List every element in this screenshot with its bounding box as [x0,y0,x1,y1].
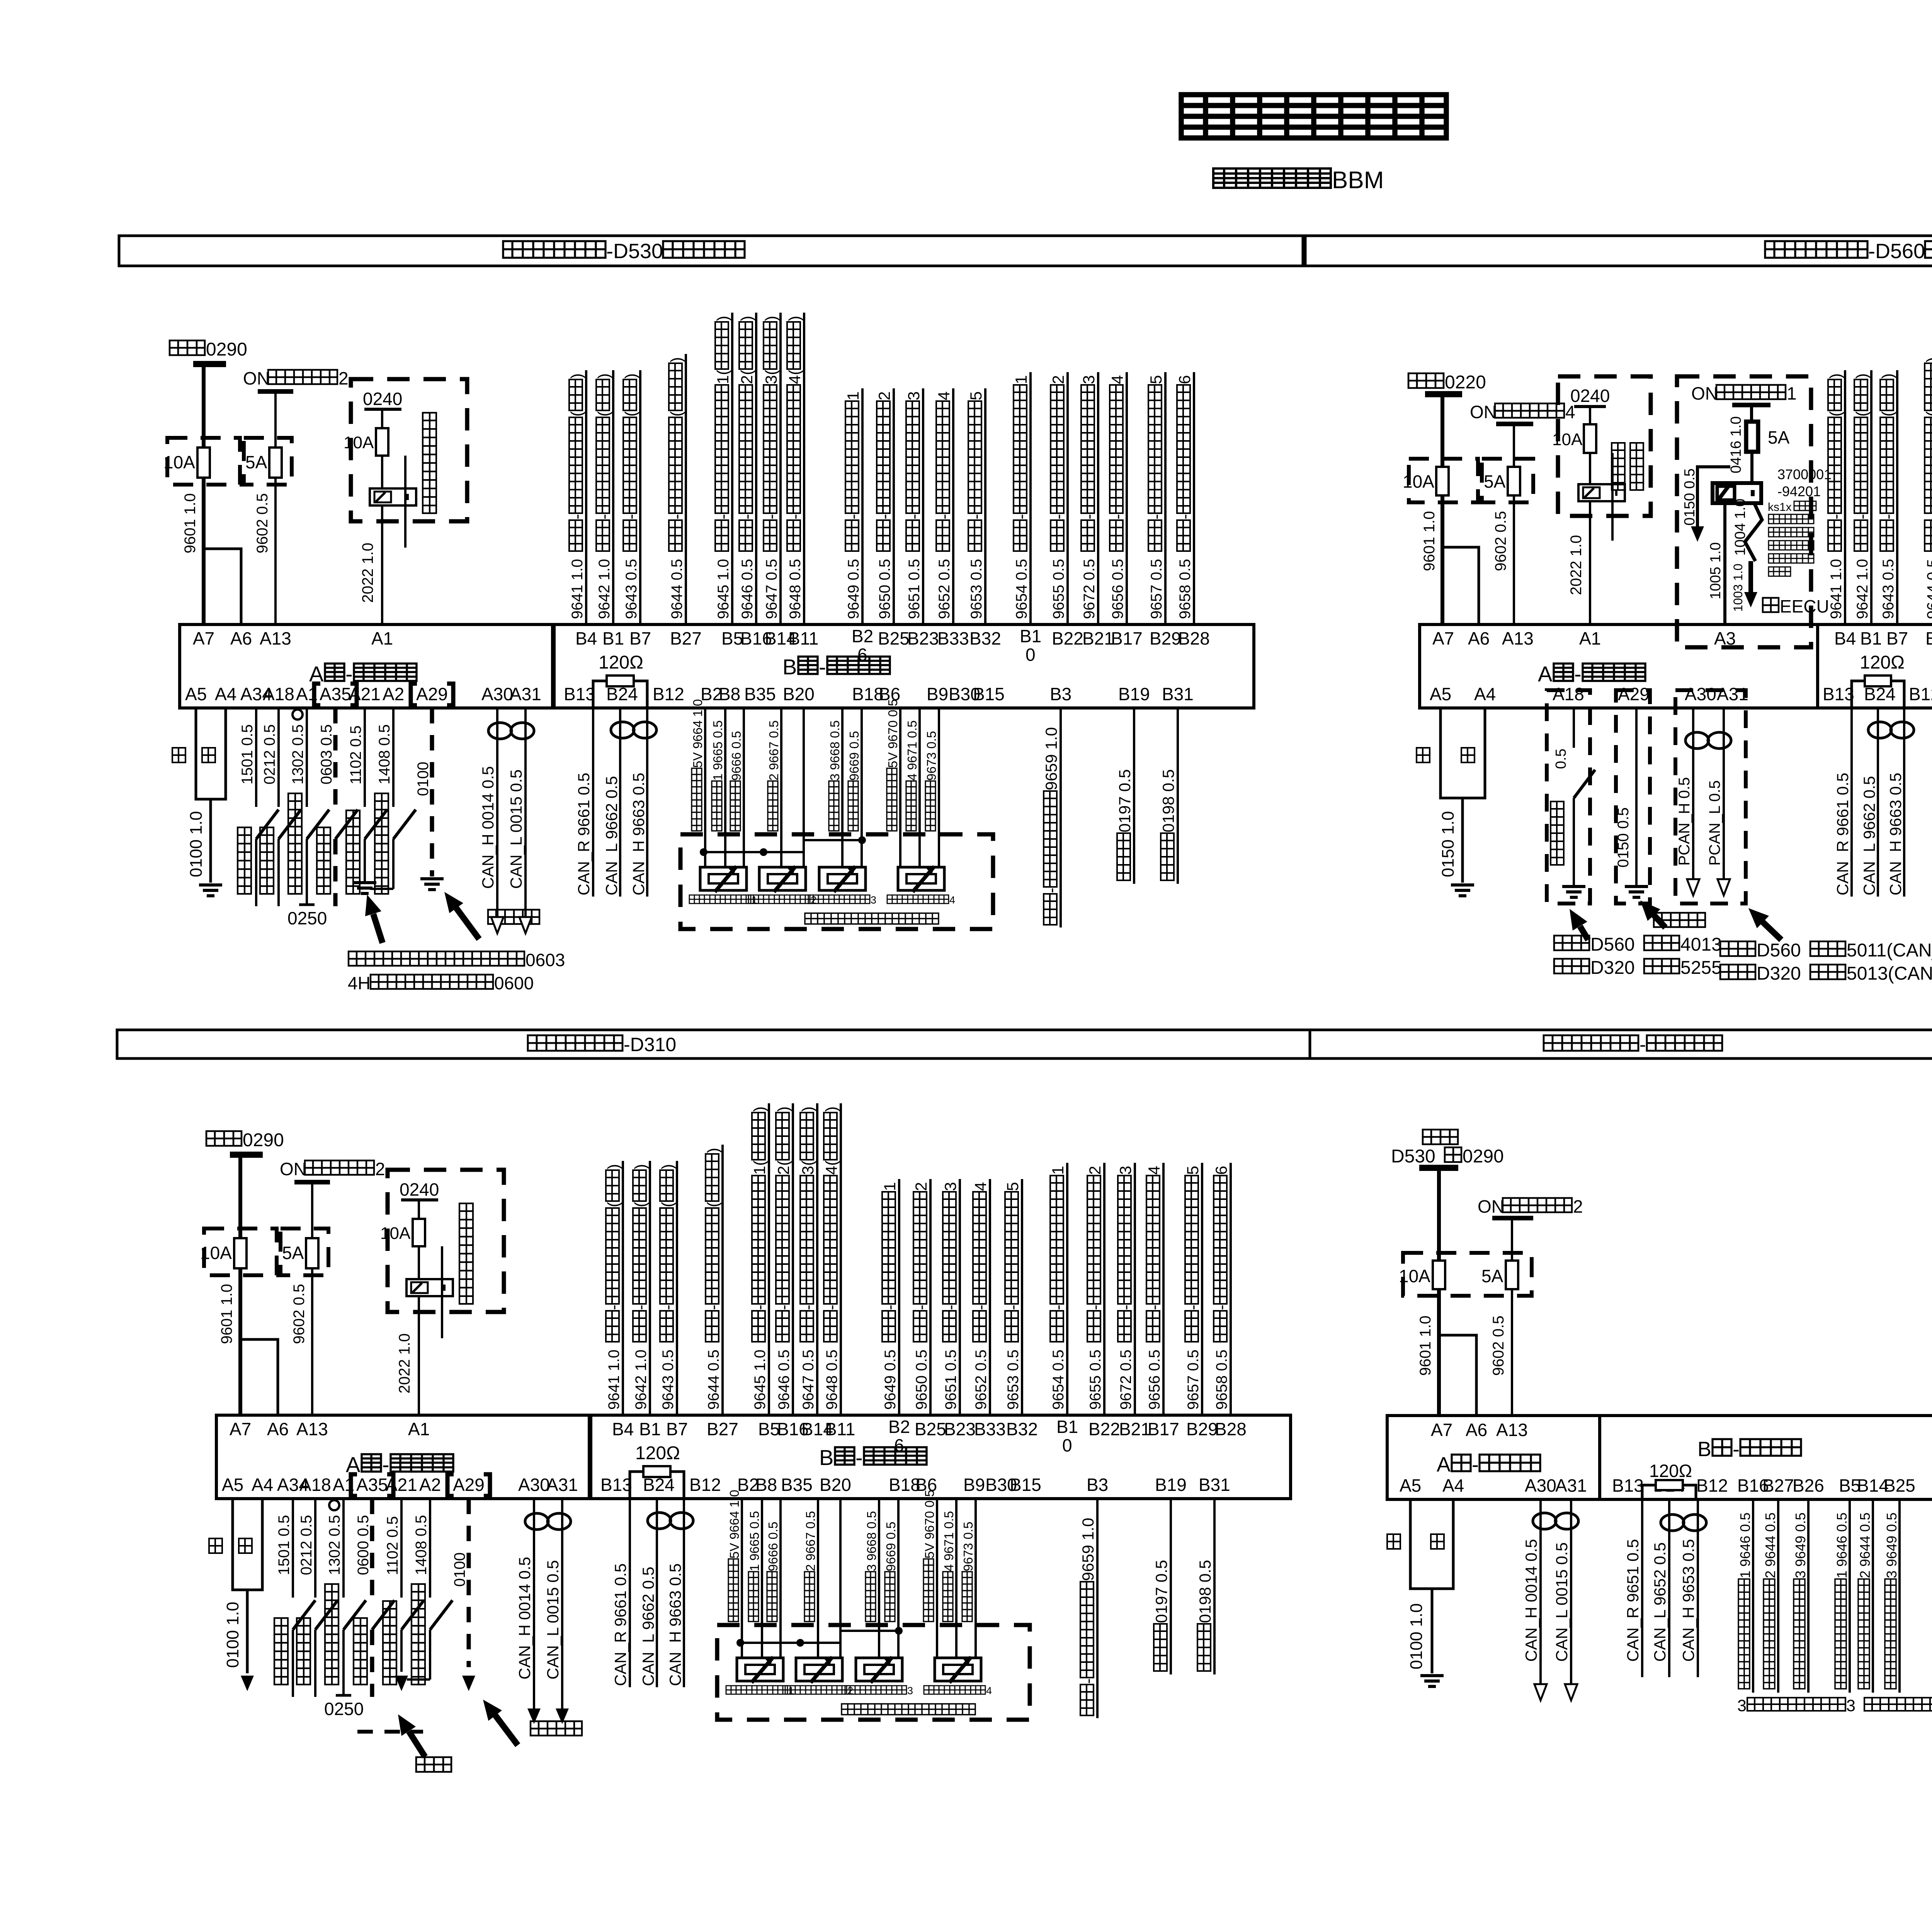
svg-text:CAN_L 0015 0.5: CAN_L 0015 0.5 [507,769,525,889]
svg-text:-: - [905,514,923,519]
svg-text:1 9665 0.5: 1 9665 0.5 [711,720,725,781]
svg-text:ON: ON [1478,1196,1504,1217]
svg-text:A31: A31 [510,684,541,704]
svg-text:9653 0.5: 9653 0.5 [1005,1349,1022,1410]
svg-text:2 9667 0.5: 2 9667 0.5 [803,1511,818,1571]
svg-text:A1: A1 [408,1419,430,1439]
svg-text:): ) [714,316,732,321]
svg-text:120Ω: 120Ω [1649,1461,1692,1481]
svg-text:9656 0.5: 9656 0.5 [1109,559,1126,619]
svg-text:9641 1.0: 9641 1.0 [569,559,586,619]
svg-text:B13: B13 [1823,684,1854,704]
svg-text:B1: B1 [1056,1417,1078,1437]
svg-text:9654 0.5: 9654 0.5 [1050,1349,1067,1410]
svg-text:): ) [622,373,640,379]
svg-text:B1: B1 [1860,628,1882,648]
svg-text:2(: 2( [774,1160,793,1175]
svg-text:-: - [875,514,893,519]
svg-text:120Ω: 120Ω [599,652,643,673]
svg-text:5V 9670 0.5: 5V 9670 0.5 [886,699,900,768]
svg-text:B: B [819,1445,833,1470]
svg-text:3: 3 [907,1685,913,1696]
svg-text:B26: B26 [1793,1475,1824,1496]
svg-text:(: ( [604,1202,622,1207]
svg-text:B20: B20 [783,684,815,704]
svg-text:A4: A4 [252,1475,273,1495]
svg-text:5: 5 [1003,1182,1022,1191]
svg-text:0240: 0240 [363,389,402,409]
svg-text:1 9646 0.5: 1 9646 0.5 [1737,1513,1753,1578]
svg-text:A29: A29 [416,684,448,704]
svg-text:9642 1.0: 9642 1.0 [633,1349,650,1410]
svg-text:-: - [881,1305,899,1310]
svg-text:B9: B9 [927,684,948,704]
svg-text:2: 2 [1049,375,1067,384]
svg-text:A5: A5 [222,1475,243,1495]
svg-text:): ) [738,316,756,321]
svg-text:B31: B31 [1162,684,1194,704]
svg-text:1302 0.5: 1302 0.5 [326,1515,343,1575]
svg-text:(: ( [658,1202,677,1207]
svg-text:-: - [967,514,985,519]
svg-text:A31: A31 [1717,684,1748,704]
svg-text:): ) [704,1148,722,1153]
svg-text:-: - [1472,1453,1479,1476]
svg-text:B35: B35 [744,684,776,704]
svg-text:CAN_L 9662 0.5: CAN_L 9662 0.5 [639,1567,657,1686]
svg-text:9657 0.5: 9657 0.5 [1148,559,1165,619]
svg-text:A6: A6 [1466,1420,1487,1440]
svg-text:B32: B32 [969,628,1001,648]
svg-text:9655 0.5: 9655 0.5 [1050,559,1067,619]
svg-text:B1: B1 [602,628,624,648]
svg-text:2 9644 0.5: 2 9644 0.5 [1857,1513,1873,1578]
svg-text:B12: B12 [1696,1475,1728,1496]
svg-text:-: - [1086,1305,1104,1310]
svg-text:-: - [658,1305,677,1310]
svg-text:1: 1 [844,391,862,400]
svg-text:A2: A2 [419,1475,441,1495]
svg-text:0600 0.5: 0600 0.5 [355,1515,372,1575]
svg-text:A5: A5 [185,684,207,704]
svg-text:-D530: -D530 [606,240,663,263]
svg-text:ON: ON [280,1159,306,1179]
svg-text:0198 0.5: 0198 0.5 [1196,1560,1214,1623]
svg-text:0250: 0250 [287,908,327,928]
svg-text:-D560: -D560 [1868,240,1925,263]
svg-text:A30: A30 [1525,1475,1556,1496]
svg-text:9666 0.5: 9666 0.5 [766,1522,780,1571]
svg-text:B15: B15 [1010,1475,1041,1495]
svg-text:B2: B2 [888,1417,910,1437]
svg-text:): ) [1827,373,1845,379]
svg-text:-: - [1080,514,1098,519]
svg-text:9650 0.5: 9650 0.5 [913,1349,930,1410]
svg-text:9651 0.5: 9651 0.5 [942,1349,959,1410]
svg-text:9646 0.5: 9646 0.5 [776,1349,793,1410]
svg-text:9602 0.5: 9602 0.5 [291,1284,308,1344]
svg-text:A: A [1538,662,1553,686]
svg-text:A29: A29 [453,1475,485,1495]
svg-text:1003 1.0: 1003 1.0 [1731,563,1745,612]
svg-text:-: - [1049,514,1067,519]
svg-text:4H: 4H [348,973,371,993]
svg-text:3: 3 [1080,375,1098,384]
svg-text:B32: B32 [1006,1419,1038,1439]
svg-text:4: 4 [949,894,955,906]
svg-text:CAN_L 9662 0.5: CAN_L 9662 0.5 [602,776,621,895]
svg-text:B7: B7 [629,628,651,648]
svg-text:B23: B23 [944,1419,976,1439]
svg-text:0250: 0250 [324,1699,364,1719]
svg-text:0198 0.5: 0198 0.5 [1159,769,1177,833]
svg-text:-: - [941,1305,959,1310]
svg-text:2: 2 [1086,1166,1104,1175]
svg-text:B33: B33 [974,1419,1006,1439]
svg-text:0603: 0603 [526,950,565,970]
svg-text:-: - [799,1305,817,1310]
svg-text:-: - [1079,1678,1097,1684]
svg-text:-: - [1003,1305,1022,1310]
svg-text:D560: D560 [1590,934,1635,955]
svg-text:A6: A6 [1468,628,1490,648]
svg-text:B11: B11 [825,1419,855,1439]
svg-text:B15: B15 [973,684,1005,704]
svg-text:0240: 0240 [1570,386,1610,406]
svg-text:): ) [667,357,685,362]
svg-text:CAN_R 9661 0.5: CAN_R 9661 0.5 [611,1563,629,1686]
svg-text:0150 1.0: 0150 1.0 [1439,811,1458,877]
svg-text:B25: B25 [878,628,910,648]
svg-text:9642 1.0: 9642 1.0 [1854,559,1871,619]
svg-text:4013: 4013 [1680,934,1722,955]
svg-text:B13: B13 [600,1475,632,1495]
svg-text:D320: D320 [1590,958,1635,978]
svg-text:2: 2 [1573,1196,1583,1217]
svg-text:A5: A5 [1400,1475,1421,1496]
svg-text:9643 0.5: 9643 0.5 [660,1349,677,1410]
svg-text:0290: 0290 [206,339,247,360]
svg-text:-: - [1212,1305,1230,1310]
svg-text:2: 2 [375,1159,385,1179]
svg-text:-: - [622,514,640,519]
svg-text:5: 5 [1147,375,1165,384]
svg-text:(: ( [568,411,586,417]
svg-text:B17: B17 [1148,1419,1179,1439]
svg-text:CAN_R 9661 0.5: CAN_R 9661 0.5 [575,773,593,895]
svg-text:9602 0.5: 9602 0.5 [254,493,271,553]
svg-text:CAN_H 0014 0.5: CAN_H 0014 0.5 [515,1557,534,1679]
svg-text:0150 0.5: 0150 0.5 [1682,468,1698,526]
svg-text:3 9668 0.5: 3 9668 0.5 [864,1511,879,1571]
svg-text:ON: ON [243,368,270,388]
svg-text:A29: A29 [1618,684,1650,704]
svg-text:1: 1 [881,1182,899,1191]
svg-text:): ) [750,1106,769,1112]
svg-text:B21: B21 [1119,1419,1151,1439]
svg-text:-: - [1879,514,1897,519]
svg-text:): ) [658,1164,677,1169]
svg-text:A4: A4 [1442,1475,1464,1496]
svg-text:4: 4 [935,391,953,400]
svg-text:-: - [1184,1305,1202,1310]
svg-text:3700001: 3700001 [1777,466,1832,482]
svg-text:0220: 0220 [1445,372,1486,393]
svg-text:A4: A4 [215,684,236,704]
svg-text:-: - [1574,662,1582,686]
svg-text:5V 9664 1.0: 5V 9664 1.0 [690,699,705,768]
svg-text:-: - [1639,1034,1646,1055]
svg-text:-: - [819,655,826,679]
svg-text:9601 1.0: 9601 1.0 [218,1284,235,1344]
svg-text:0197 0.5: 0197 0.5 [1152,1560,1170,1623]
svg-text:CAN_H 9653 0.5: CAN_H 9653 0.5 [1679,1539,1697,1662]
svg-text:CAN_L 0015 0.5: CAN_L 0015 0.5 [1553,1542,1571,1662]
svg-text:1501 0.5: 1501 0.5 [276,1515,293,1575]
svg-text:CAN_L 0015 0.5: CAN_L 0015 0.5 [544,1560,562,1679]
svg-text:6: 6 [1175,375,1194,384]
svg-text:10A: 10A [344,433,374,452]
svg-text:9647 0.5: 9647 0.5 [800,1349,817,1410]
svg-text:9658 0.5: 9658 0.5 [1177,559,1194,619]
svg-text:B17: B17 [1111,628,1143,648]
svg-text:-: - [1853,514,1871,519]
svg-text:A18: A18 [299,1475,331,1495]
svg-text:3: 3 [1846,1696,1855,1715]
svg-text:10A: 10A [1552,430,1583,449]
svg-text:B12: B12 [689,1475,721,1495]
svg-text:B31: B31 [1199,1475,1230,1495]
svg-text:2022 1.0: 2022 1.0 [359,543,376,603]
svg-text:5V 9670 0.5: 5V 9670 0.5 [922,1490,937,1559]
svg-text:3 9649 0.5: 3 9649 0.5 [1884,1513,1900,1578]
svg-text:B25: B25 [1884,1475,1915,1496]
svg-text:4: 4 [986,1685,992,1696]
svg-text:9601 1.0: 9601 1.0 [1421,511,1438,571]
svg-text:9601 1.0: 9601 1.0 [182,493,199,553]
svg-text:10A: 10A [1399,1266,1430,1286]
svg-text:3: 3 [1116,1166,1134,1175]
svg-text:2: 2 [875,391,893,400]
svg-text:B29: B29 [1186,1419,1218,1439]
svg-text:PCAN_L 0.5: PCAN_L 0.5 [1706,780,1723,866]
svg-text:B27: B27 [1762,1475,1794,1496]
svg-text:-: - [774,1305,793,1310]
svg-text:A13: A13 [296,1419,328,1439]
svg-text:-: - [855,1445,863,1470]
svg-text:CAN_H 9663 0.5: CAN_H 9663 0.5 [666,1563,684,1686]
svg-text:B33: B33 [937,628,969,648]
svg-text:A7: A7 [230,1419,251,1439]
svg-text:1302 0.5: 1302 0.5 [289,724,306,784]
svg-text:): ) [762,316,780,321]
svg-text:-: - [1923,514,1932,519]
svg-text:B8: B8 [755,1475,777,1495]
svg-text:B22: B22 [1052,628,1083,648]
svg-text:9650 0.5: 9650 0.5 [876,559,893,619]
svg-text:(: ( [704,1202,722,1207]
svg-text:0100 1.0: 0100 1.0 [1407,1603,1426,1669]
svg-text:B12: B12 [653,684,684,704]
svg-text:D530: D530 [1391,1146,1435,1167]
svg-text:A31: A31 [1555,1475,1587,1496]
svg-text:4: 4 [971,1182,990,1191]
svg-text:B7: B7 [1886,628,1908,648]
svg-text:1: 1 [788,1685,794,1696]
svg-text:CAN_L 9662 0.5: CAN_L 9662 0.5 [1860,776,1878,895]
svg-text:9644 0.5: 9644 0.5 [705,1349,722,1410]
svg-text:0416 1.0: 0416 1.0 [1728,416,1744,473]
svg-text:(: ( [1853,411,1871,417]
svg-text:B4: B4 [1834,628,1856,648]
svg-text:CAN_H 0014 0.5: CAN_H 0014 0.5 [479,766,497,889]
svg-text:4: 4 [1145,1166,1163,1175]
svg-text:1005 1.0: 1005 1.0 [1708,542,1724,599]
svg-text:9669 0.5: 9669 0.5 [884,1522,898,1571]
svg-text:A6: A6 [230,628,252,648]
svg-text:4(: 4( [822,1160,840,1175]
svg-text:-: - [762,514,780,519]
svg-text:B29: B29 [1150,628,1181,648]
svg-text:1102 0.5: 1102 0.5 [347,725,364,784]
svg-text:1 9665 0.5: 1 9665 0.5 [747,1511,762,1571]
svg-text:9643 0.5: 9643 0.5 [623,559,640,619]
svg-text:0100 1.0: 0100 1.0 [187,811,206,877]
svg-text:1: 1 [1787,383,1797,403]
svg-text:2 9667 0.5: 2 9667 0.5 [767,720,781,781]
svg-text:EECU: EECU [1780,596,1829,616]
svg-text:ON: ON [1470,402,1497,422]
svg-text:9666 0.5: 9666 0.5 [729,731,743,781]
svg-text:A31: A31 [546,1475,578,1495]
svg-text:1 9646 0.5: 1 9646 0.5 [1834,1513,1850,1578]
svg-text:CAN_H 0014 0.5: CAN_H 0014 0.5 [1522,1539,1540,1662]
svg-text:-: - [912,1305,930,1310]
svg-text:9672 0.5: 9672 0.5 [1081,559,1098,619]
svg-text:3(: 3( [762,370,780,384]
svg-text:B1: B1 [1020,626,1041,646]
svg-text:A6: A6 [267,1419,289,1439]
svg-text:B9: B9 [963,1475,985,1495]
svg-text:2 9644 0.5: 2 9644 0.5 [1762,1513,1778,1578]
svg-text:B: B [782,655,797,679]
svg-text:9656 0.5: 9656 0.5 [1146,1349,1163,1410]
svg-text:-: - [1733,1438,1740,1461]
svg-text:1: 1 [752,894,757,906]
svg-text:B25: B25 [915,1419,946,1439]
svg-text:A3: A3 [1714,628,1736,648]
svg-text:): ) [568,373,586,379]
svg-text:0212 0.5: 0212 0.5 [261,724,278,784]
svg-text:9641 1.0: 9641 1.0 [605,1349,622,1410]
svg-text:-: - [1049,1305,1067,1310]
svg-text:-: - [1116,1305,1134,1310]
svg-text:10A: 10A [1403,471,1434,492]
svg-text:-: - [1108,514,1126,519]
svg-text:9647 0.5: 9647 0.5 [763,559,780,619]
svg-text:120Ω: 120Ω [1860,652,1905,673]
svg-text:9655 0.5: 9655 0.5 [1087,1349,1104,1410]
svg-text:B12: B12 [1909,684,1932,704]
svg-text:5A: 5A [282,1243,304,1263]
svg-text:A2: A2 [383,684,404,704]
svg-text:-: - [568,514,586,519]
svg-text:B21: B21 [1082,628,1114,648]
svg-text:): ) [1853,373,1871,379]
svg-text:A1: A1 [371,628,393,648]
svg-text:A35: A35 [320,684,351,704]
svg-text:0: 0 [1062,1435,1072,1455]
svg-text:9645 1.0: 9645 1.0 [752,1349,769,1410]
svg-text:B13: B13 [564,684,595,704]
svg-text:9601 1.0: 9601 1.0 [1417,1315,1434,1376]
svg-text:B19: B19 [1118,684,1150,704]
svg-text:-: - [786,514,804,519]
svg-text:(: ( [622,411,640,417]
svg-text:0600: 0600 [494,973,534,993]
svg-text:A30: A30 [481,684,513,704]
svg-text:B22: B22 [1088,1419,1120,1439]
svg-text:): ) [774,1106,793,1112]
svg-text:9659 1.0: 9659 1.0 [1079,1518,1097,1581]
svg-text:9658 0.5: 9658 0.5 [1213,1349,1230,1410]
svg-text:-: - [667,514,685,519]
svg-text:1(: 1( [750,1160,769,1175]
svg-text:B28: B28 [1178,628,1210,648]
svg-text:3: 3 [905,391,923,400]
svg-text:2: 2 [912,1182,930,1191]
svg-text:(: ( [595,411,613,417]
svg-text:A7: A7 [1432,628,1454,648]
svg-text:5013(CAN_H) 5014(CAN_L): 5013(CAN_H) 5014(CAN_L) [1847,963,1932,984]
svg-text:0197 0.5: 0197 0.5 [1116,769,1134,833]
svg-text:B8: B8 [719,684,740,704]
svg-text:B20: B20 [820,1475,851,1495]
svg-text:-94201: -94201 [1777,483,1821,499]
svg-text:-: - [935,514,953,519]
svg-text:B23: B23 [907,628,939,648]
svg-text:): ) [595,373,613,379]
svg-text:4 9671 0.5: 4 9671 0.5 [905,720,919,781]
svg-text:5V 9664 1.0: 5V 9664 1.0 [727,1490,742,1559]
svg-text:): ) [822,1106,840,1112]
svg-text:B35: B35 [781,1475,813,1495]
svg-text:-: - [704,1305,722,1310]
svg-text:A30: A30 [1685,684,1716,704]
svg-text:-: - [595,514,613,519]
svg-text:A5: A5 [1430,684,1451,704]
svg-text:A: A [1437,1453,1451,1476]
svg-text:A35: A35 [356,1475,388,1495]
svg-text:9673 0.5: 9673 0.5 [961,1522,975,1571]
svg-text:5A: 5A [1768,427,1790,448]
svg-text:10A: 10A [380,1224,411,1243]
svg-text:B3: B3 [1050,684,1071,704]
svg-text:0150 0.5: 0150 0.5 [1615,807,1632,868]
svg-text:1408 0.5: 1408 0.5 [376,724,393,784]
svg-text:-: - [750,1305,769,1310]
svg-text:B27: B27 [707,1419,738,1439]
svg-text:BBM: BBM [1332,167,1384,194]
svg-text:4: 4 [1108,375,1126,384]
svg-text:-: - [604,1305,622,1310]
svg-text:9649 0.5: 9649 0.5 [882,1349,899,1410]
svg-text:5255: 5255 [1680,958,1722,978]
svg-text:9644 0.5: 9644 0.5 [1924,559,1932,619]
svg-text:-: - [1145,1305,1163,1310]
svg-text:5A: 5A [1481,1266,1503,1286]
svg-text:5: 5 [967,391,985,400]
